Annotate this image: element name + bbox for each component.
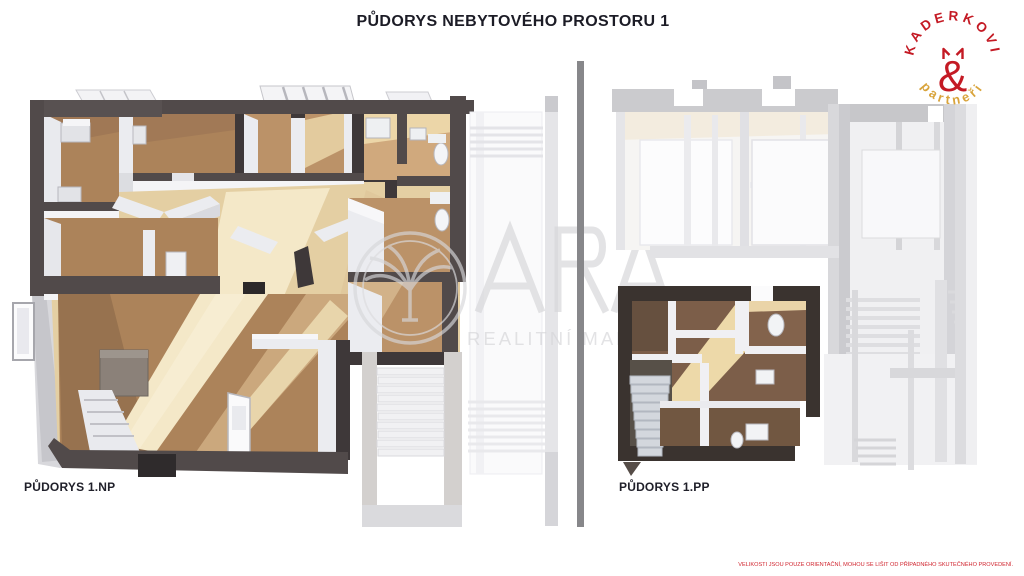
svg-text:&: & (938, 52, 967, 101)
svg-text:PŮDORYS 1.NP: PŮDORYS 1.NP (24, 478, 115, 494)
svg-text:PŮDORYS NEBYTOVÉHO PROSTORU 1: PŮDORYS NEBYTOVÉHO PROSTORU 1 (356, 10, 669, 30)
svg-text:PŮDORYS 1.PP: PŮDORYS 1.PP (619, 478, 710, 494)
svg-text:VELIKOSTI JSOU POUZE ORIENTAČN: VELIKOSTI JSOU POUZE ORIENTAČNÍ, MOHOU S… (738, 560, 1013, 568)
